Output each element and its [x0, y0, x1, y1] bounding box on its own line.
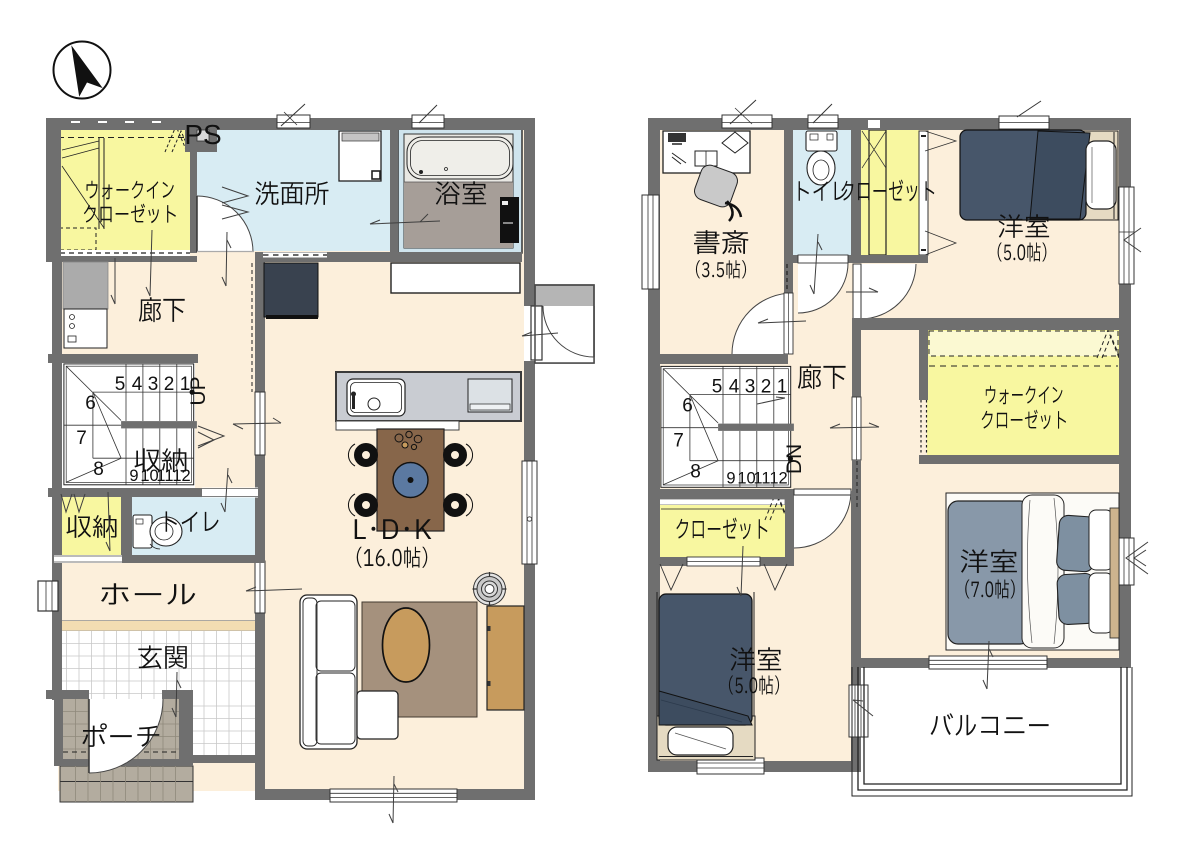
svg-text:5: 5 — [712, 377, 723, 398]
svg-text:7: 7 — [673, 431, 684, 452]
svg-text:6: 6 — [85, 393, 96, 414]
svg-text:DN: DN — [783, 444, 806, 474]
svg-text:9: 9 — [129, 467, 138, 485]
svg-text:9: 9 — [726, 470, 735, 488]
svg-text:12: 12 — [172, 467, 190, 485]
svg-text:PS: PS — [184, 119, 221, 150]
svg-text:1: 1 — [777, 377, 788, 398]
svg-text:UP: UP — [187, 376, 210, 405]
svg-text:5: 5 — [115, 374, 126, 395]
svg-text:6: 6 — [682, 396, 693, 417]
svg-text:4: 4 — [132, 374, 143, 395]
svg-text:2: 2 — [164, 374, 175, 395]
svg-text:2: 2 — [761, 377, 772, 398]
svg-text:8: 8 — [93, 459, 104, 480]
svg-text:3: 3 — [148, 374, 159, 395]
svg-text:7: 7 — [76, 428, 87, 449]
svg-text:4: 4 — [729, 377, 740, 398]
svg-text:8: 8 — [690, 462, 701, 483]
svg-text:3: 3 — [745, 377, 756, 398]
svg-text:11: 11 — [753, 470, 770, 488]
